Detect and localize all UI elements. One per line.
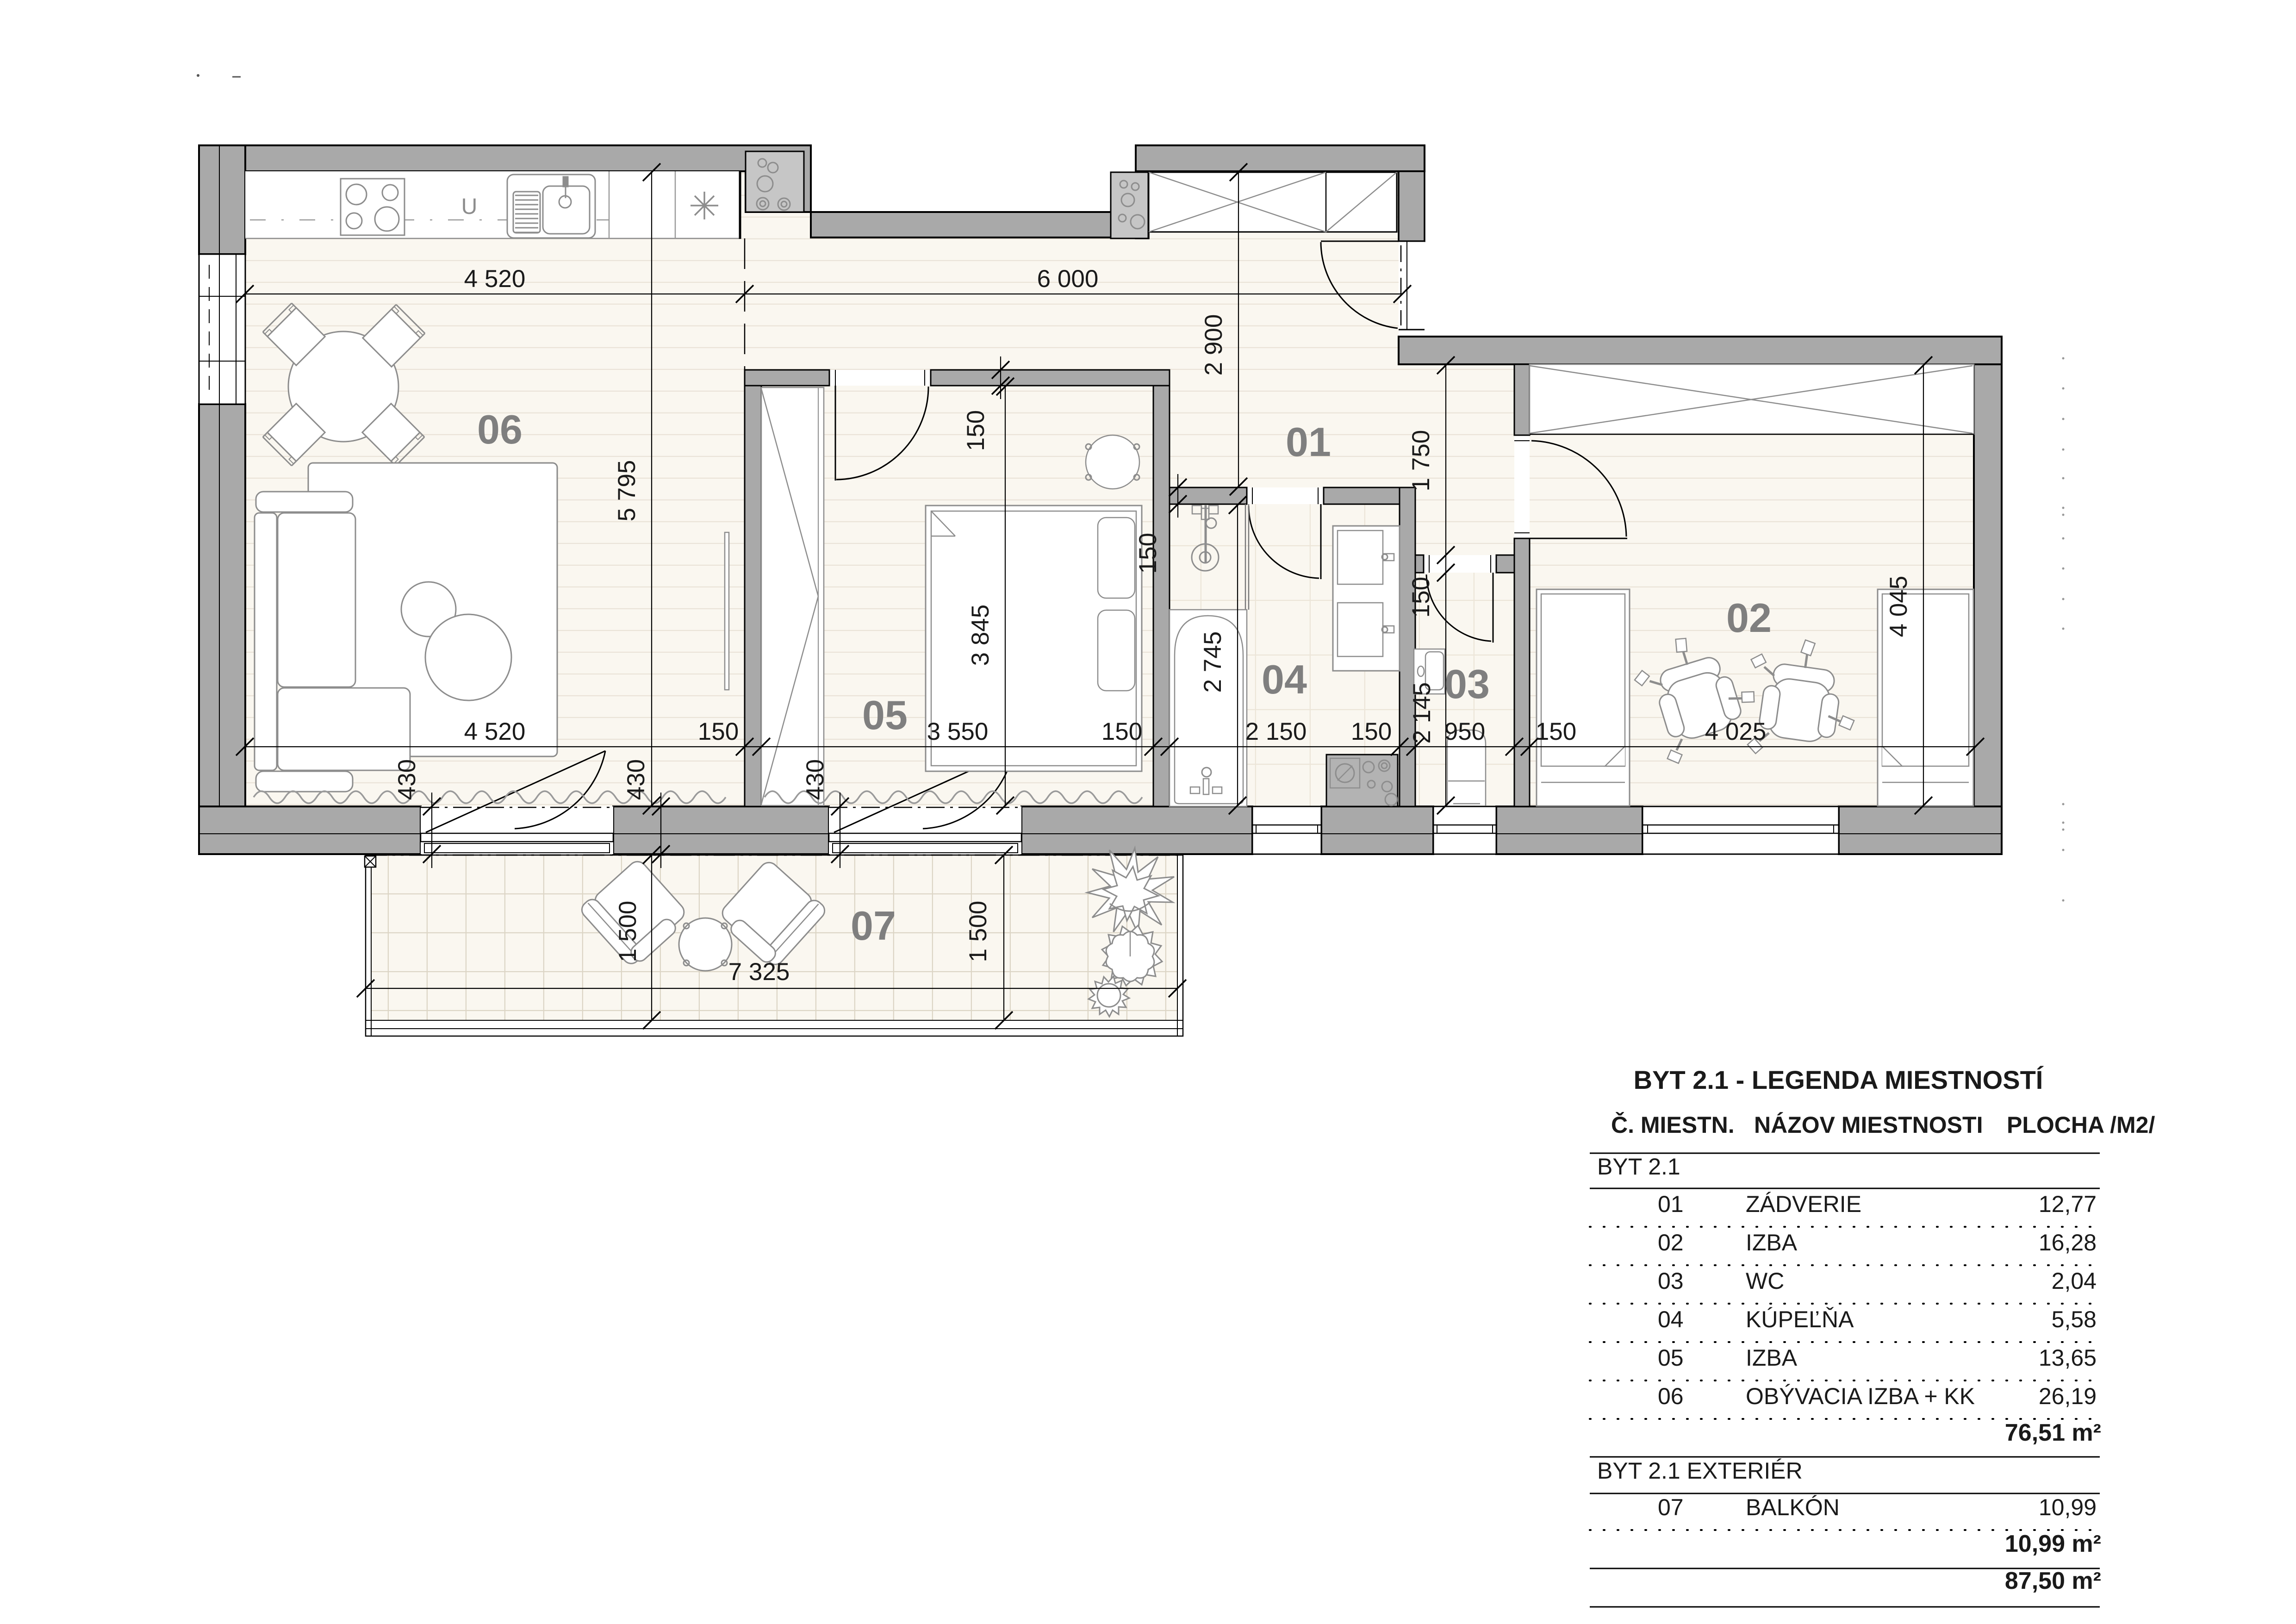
svg-text:BYT 2.1: BYT 2.1 [1597, 1154, 1680, 1180]
svg-text:WC: WC [1746, 1268, 1784, 1294]
svg-text:10,99 m²: 10,99 m² [2005, 1530, 2101, 1557]
svg-text:07: 07 [851, 903, 896, 949]
svg-text:05: 05 [1658, 1345, 1684, 1371]
svg-text:10,99: 10,99 [2039, 1494, 2097, 1520]
svg-text:1 750: 1 750 [1407, 430, 1435, 492]
svg-text:7 325: 7 325 [728, 958, 790, 986]
svg-text:2,04: 2,04 [2052, 1268, 2097, 1294]
svg-text:02: 02 [1726, 595, 1772, 641]
svg-text:26,19: 26,19 [2039, 1383, 2097, 1409]
svg-text:01: 01 [1286, 419, 1331, 465]
svg-text:430: 430 [802, 759, 829, 800]
svg-text:07: 07 [1658, 1494, 1684, 1520]
svg-text:IZBA: IZBA [1746, 1230, 1798, 1255]
svg-text:KÚPEĽŇA: KÚPEĽŇA [1746, 1306, 1854, 1332]
svg-text:1 500: 1 500 [964, 901, 992, 962]
svg-text:OBÝVACIA IZBA + KK: OBÝVACIA IZBA + KK [1746, 1383, 1975, 1409]
svg-text:4 045: 4 045 [1885, 576, 1912, 637]
svg-text:2 900: 2 900 [1200, 314, 1227, 376]
svg-text:2 145: 2 145 [1408, 682, 1436, 744]
svg-text:06: 06 [477, 406, 523, 452]
svg-text:2 150: 2 150 [1245, 718, 1307, 745]
svg-text:BYT 2.1 - LEGENDA MIESTNOSTÍ: BYT 2.1 - LEGENDA MIESTNOSTÍ [1634, 1065, 2044, 1094]
svg-text:4 520: 4 520 [464, 265, 526, 293]
svg-text:3 550: 3 550 [927, 718, 989, 745]
svg-text:150: 150 [962, 410, 989, 451]
svg-text:950: 950 [1444, 718, 1485, 745]
svg-text:150: 150 [1351, 718, 1392, 745]
svg-text:04: 04 [1262, 656, 1307, 702]
svg-text:16,28: 16,28 [2039, 1230, 2097, 1255]
svg-text:BYT 2.1 EXTERIÉR: BYT 2.1 EXTERIÉR [1597, 1458, 1803, 1484]
svg-text:150: 150 [1134, 533, 1162, 574]
svg-text:U: U [461, 194, 478, 219]
svg-text:PLOCHA /M2/: PLOCHA /M2/ [2007, 1112, 2155, 1138]
svg-text:BALKÓN: BALKÓN [1746, 1494, 1840, 1520]
svg-text:87,50 m²: 87,50 m² [2005, 1568, 2101, 1594]
svg-text:4 025: 4 025 [1705, 718, 1767, 745]
svg-text:3 845: 3 845 [967, 605, 994, 666]
svg-text:2 745: 2 745 [1199, 631, 1226, 693]
svg-text:ZÁDVERIE: ZÁDVERIE [1746, 1191, 1861, 1217]
svg-text:05: 05 [862, 692, 908, 738]
svg-text:13,65: 13,65 [2039, 1345, 2097, 1371]
svg-text:03: 03 [1658, 1268, 1684, 1294]
svg-text:03: 03 [1444, 661, 1490, 707]
svg-text:NÁZOV MIESTNOSTI: NÁZOV MIESTNOSTI [1754, 1112, 1983, 1138]
svg-text:4 520: 4 520 [464, 718, 526, 745]
svg-text:6 000: 6 000 [1037, 265, 1099, 293]
svg-text:5,58: 5,58 [2052, 1306, 2097, 1332]
svg-text:150: 150 [698, 718, 739, 745]
svg-text:430: 430 [393, 759, 421, 800]
svg-text:IZBA: IZBA [1746, 1345, 1798, 1371]
svg-text:Č. MIESTN.: Č. MIESTN. [1611, 1112, 1735, 1138]
svg-text:76,51 m²: 76,51 m² [2005, 1419, 2101, 1446]
svg-text:06: 06 [1658, 1383, 1684, 1409]
svg-text:12,77: 12,77 [2039, 1191, 2097, 1217]
svg-text:5 795: 5 795 [613, 460, 641, 522]
svg-text:150: 150 [1407, 577, 1435, 618]
svg-text:04: 04 [1658, 1306, 1684, 1332]
svg-text:1 500: 1 500 [614, 901, 641, 962]
svg-text:02: 02 [1658, 1230, 1684, 1255]
svg-text:430: 430 [622, 759, 650, 800]
svg-text:01: 01 [1658, 1191, 1684, 1217]
svg-text:150: 150 [1536, 718, 1576, 745]
svg-text:150: 150 [1101, 718, 1142, 745]
